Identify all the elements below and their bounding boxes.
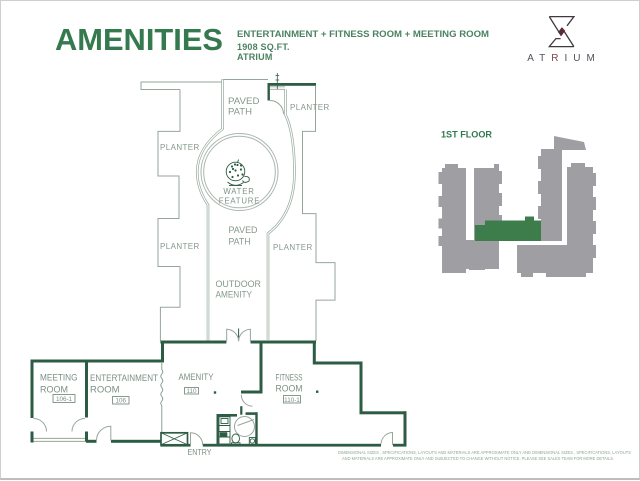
svg-text:110: 110 bbox=[186, 388, 197, 395]
svg-text:PLANTER: PLANTER bbox=[160, 242, 200, 251]
svg-text:AMENITY: AMENITY bbox=[179, 372, 214, 382]
svg-text:ROOM: ROOM bbox=[40, 384, 68, 394]
svg-text:OUTDOOR: OUTDOOR bbox=[216, 279, 262, 289]
svg-text:FITNESS: FITNESS bbox=[276, 373, 303, 383]
svg-text:AMENITY: AMENITY bbox=[216, 290, 253, 300]
svg-text:ROOM: ROOM bbox=[276, 384, 303, 394]
svg-text:ROOM: ROOM bbox=[90, 385, 120, 395]
svg-text:FEATURE: FEATURE bbox=[219, 197, 260, 206]
svg-text:PATH: PATH bbox=[228, 107, 252, 117]
svg-text:PATH: PATH bbox=[229, 237, 251, 247]
svg-text:AND MATERIALS ARE APPROXIMATE: AND MATERIALS ARE APPROXIMATE ONLY AND S… bbox=[342, 456, 614, 461]
svg-text:PAVED: PAVED bbox=[228, 96, 260, 106]
svg-text:ATRIUM: ATRIUM bbox=[237, 52, 273, 62]
svg-text:PLANTER: PLANTER bbox=[290, 103, 330, 112]
svg-text:MEETING: MEETING bbox=[40, 373, 78, 383]
svg-text:AMENITIES: AMENITIES bbox=[55, 22, 223, 57]
svg-text:110-1: 110-1 bbox=[284, 397, 300, 404]
svg-text:ATRIUM: ATRIUM bbox=[527, 53, 601, 64]
svg-text:106-1: 106-1 bbox=[56, 396, 73, 403]
svg-text:ENTERTAINMENT: ENTERTAINMENT bbox=[90, 373, 158, 383]
svg-text:WATER: WATER bbox=[223, 187, 254, 196]
svg-text:PLANTER: PLANTER bbox=[160, 143, 200, 152]
svg-text:ENTERTAINMENT + FITNESS ROOM +: ENTERTAINMENT + FITNESS ROOM + MEETING R… bbox=[237, 29, 489, 39]
svg-text:1ST FLOOR: 1ST FLOOR bbox=[441, 130, 492, 140]
svg-text:PAVED: PAVED bbox=[229, 225, 258, 235]
svg-text:PLANTER: PLANTER bbox=[273, 243, 313, 252]
svg-text:ENTRY: ENTRY bbox=[188, 447, 212, 457]
svg-text:1908 SQ.FT.: 1908 SQ.FT. bbox=[237, 42, 290, 52]
svg-text:DIMENSIONAL SIZES , SPECIFICAT: DIMENSIONAL SIZES , SPECIFICATIONS, LAYO… bbox=[338, 450, 631, 455]
svg-text:106: 106 bbox=[115, 398, 126, 405]
